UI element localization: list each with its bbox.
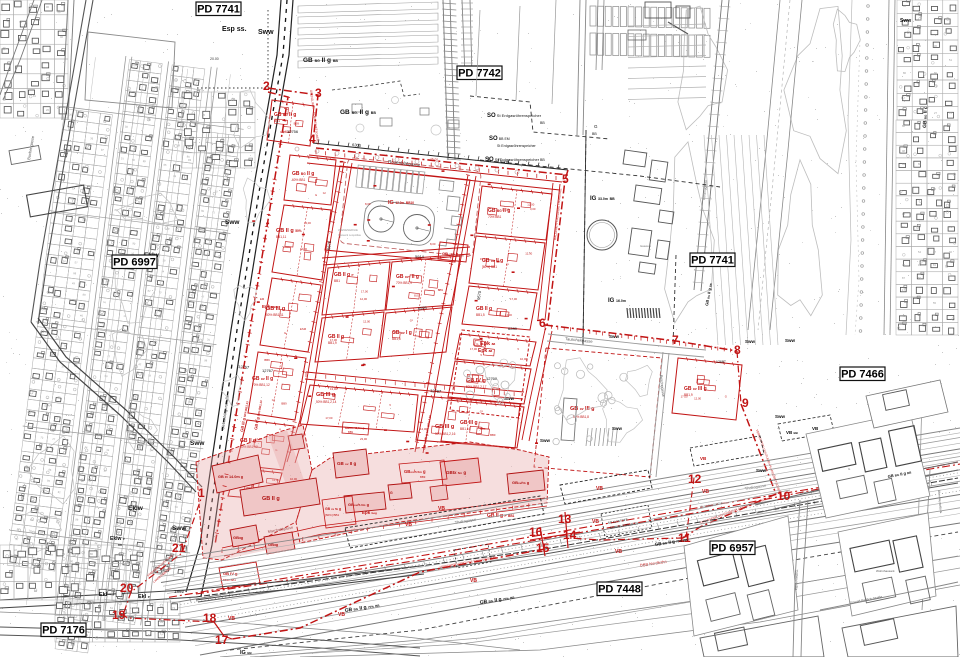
- svg-text:50% BB1,2,16: 50% BB1,2,16: [435, 432, 456, 436]
- svg-text:VB: VB: [228, 616, 235, 622]
- svg-text:17,00: 17,00: [470, 347, 477, 351]
- svg-text:70% BB1,12: 70% BB1,12: [252, 383, 270, 387]
- svg-text:2: 2: [263, 79, 270, 93]
- svg-text:8,00: 8,00: [414, 294, 420, 298]
- svg-text:3: 3: [315, 86, 322, 100]
- svg-text:PD 7466: PD 7466: [841, 369, 884, 381]
- svg-text:G: G: [476, 342, 478, 346]
- svg-text:Gaswerk Leopoldau: Gaswerk Leopoldau: [338, 233, 362, 237]
- svg-text:BB1,11: BB1,11: [276, 235, 286, 239]
- svg-text:1892: 1892: [174, 589, 185, 594]
- svg-text:8,00: 8,00: [430, 242, 436, 246]
- svg-text:BB1,5: BB1,5: [392, 337, 401, 341]
- svg-text:PD 7742: PD 7742: [458, 68, 501, 80]
- svg-text:PD 7176: PD 7176: [42, 625, 85, 637]
- svg-text:Eklw P: Eklw P: [110, 536, 125, 542]
- svg-text:BB1,9: BB1,9: [684, 393, 693, 397]
- svg-text:VB: VB: [615, 549, 622, 555]
- svg-text:BB1: BB1: [334, 279, 340, 283]
- svg-text:1: 1: [198, 486, 205, 500]
- svg-text:17,00: 17,00: [361, 290, 368, 294]
- svg-text:BB: BB: [540, 121, 545, 125]
- svg-text:BB1,9: BB1,9: [328, 341, 337, 345]
- svg-text:10,00: 10,00: [290, 477, 297, 481]
- svg-text:G²: G²: [272, 398, 275, 402]
- svg-text:13: 13: [558, 512, 572, 526]
- svg-text:12687: 12687: [716, 360, 726, 364]
- svg-text:12757: 12757: [238, 364, 250, 370]
- svg-text:70% BB1: 70% BB1: [488, 215, 502, 219]
- svg-text:BB: BB: [118, 543, 122, 547]
- svg-text:GB III g: GB III g: [266, 306, 285, 312]
- svg-text:4,00: 4,00: [480, 427, 486, 431]
- svg-text:12,00: 12,00: [360, 297, 367, 301]
- svg-text:G: G: [284, 331, 286, 335]
- svg-text:50% BB1,2,17: 50% BB1,2,17: [466, 385, 487, 389]
- svg-text:VB: VB: [700, 456, 707, 461]
- svg-text:[60%] BB1: [60%] BB1: [482, 265, 497, 269]
- svg-text:8,00: 8,00: [365, 202, 371, 206]
- svg-text:12,00: 12,00: [505, 313, 512, 317]
- svg-text:12767: 12767: [262, 368, 274, 373]
- svg-text:GB ov II g: GB ov II g: [337, 461, 357, 466]
- svg-text:18: 18: [203, 611, 217, 625]
- svg-text:Eklw: Eklw: [128, 505, 144, 512]
- svg-text:8: 8: [734, 343, 741, 357]
- svg-text:Sww: Sww: [756, 468, 767, 473]
- svg-text:21: 21: [172, 541, 186, 555]
- svg-text:PD 7741: PD 7741: [197, 4, 240, 16]
- svg-text:GBov/5.0m g: GBov/5.0m g: [348, 502, 370, 507]
- svg-text:GB 35 14.0m g: GB 35 14.0m g: [218, 475, 244, 479]
- svg-text:10: 10: [777, 489, 791, 503]
- svg-text:PD 6957: PD 6957: [711, 543, 754, 555]
- svg-text:G: G: [315, 193, 317, 197]
- svg-text:VB: VB: [592, 519, 599, 525]
- svg-text:VB BB: VB BB: [786, 430, 799, 435]
- svg-text:GBIIg: GBIIg: [233, 535, 244, 540]
- svg-text:EM: EM: [260, 297, 265, 301]
- svg-text:Sww: Sww: [540, 438, 551, 443]
- svg-text:WIENENERGIE: WIENENERGIE: [338, 228, 358, 232]
- svg-text:GBov/5b g: GBov/5b g: [512, 480, 530, 485]
- svg-text:BB9: BB9: [281, 401, 287, 405]
- svg-text:BB9: BB9: [348, 430, 353, 434]
- svg-text:BB9: BB9: [294, 122, 300, 126]
- svg-text:St Erdgasröhrenspeicher: St Erdgasröhrenspeicher: [497, 144, 537, 148]
- svg-text:10,00: 10,00: [520, 357, 527, 361]
- svg-text:19: 19: [112, 608, 126, 622]
- svg-text:Sww: Sww: [612, 426, 623, 431]
- svg-text:17,00: 17,00: [325, 416, 332, 420]
- svg-text:17,00: 17,00: [510, 297, 517, 301]
- svg-text:9: 9: [742, 396, 749, 410]
- svg-text:7: 7: [672, 333, 679, 347]
- svg-text:Wohnhausanl.: Wohnhausanl.: [876, 569, 895, 573]
- svg-text:Esp ss.: Esp ss.: [222, 26, 247, 33]
- svg-text:Sww: Sww: [775, 414, 786, 419]
- svg-text:12,00: 12,00: [363, 320, 370, 324]
- svg-text:60% BB1: 60% BB1: [292, 178, 306, 182]
- svg-text:Sww: Sww: [785, 338, 796, 343]
- svg-text:Sww: Sww: [172, 525, 187, 532]
- svg-text:50% BB1,2,14: 50% BB1,2,14: [316, 400, 337, 404]
- svg-text:23,00: 23,00: [360, 437, 367, 441]
- svg-text:15,00: 15,00: [480, 257, 487, 261]
- svg-text:G: G: [390, 491, 393, 495]
- svg-text:Ekl: Ekl: [99, 592, 108, 598]
- svg-text:12: 12: [688, 472, 702, 486]
- svg-text:6300: 6300: [352, 142, 362, 148]
- svg-text:GBCh 13,0m g: GBCh 13,0m g: [345, 426, 365, 430]
- svg-text:G²: G²: [506, 263, 509, 267]
- svg-text:Epk beg: Epk beg: [362, 510, 377, 515]
- svg-text:GB II g: GB II g: [328, 334, 344, 340]
- svg-text:GB III g: GB III g: [460, 420, 478, 426]
- svg-text:Sww: Sww: [900, 18, 911, 24]
- svg-text:20.00: 20.00: [210, 57, 219, 61]
- svg-text:12,00: 12,00: [304, 221, 311, 225]
- svg-text:6289: 6289: [508, 326, 518, 331]
- svg-text:BB1,16: BB1,16: [460, 427, 471, 431]
- svg-text:G: G: [594, 124, 598, 129]
- svg-text:GBIx 5m g: GBIx 5m g: [446, 470, 466, 475]
- svg-text:Sww: Sww: [190, 440, 205, 447]
- svg-text:Sww: Sww: [225, 219, 240, 226]
- svg-text:BB9: BB9: [264, 358, 270, 362]
- svg-text:G²: G²: [480, 410, 483, 414]
- svg-text:20: 20: [120, 581, 134, 595]
- svg-text:6300: 6300: [500, 159, 510, 165]
- svg-text:PD 7448: PD 7448: [598, 584, 641, 596]
- svg-text:GB II g P: GB II g P: [334, 272, 354, 278]
- svg-text:3,00: 3,00: [530, 207, 536, 211]
- svg-text:12787: 12787: [430, 388, 442, 394]
- svg-text:14: 14: [563, 528, 577, 542]
- svg-text:BB9: BB9: [490, 433, 496, 437]
- svg-text:VB: VB: [438, 506, 445, 512]
- svg-text:12756: 12756: [287, 129, 299, 134]
- svg-text:BB1,5: BB1,5: [476, 313, 485, 317]
- svg-text:6595: 6595: [418, 305, 428, 311]
- svg-text:ESM: ESM: [300, 327, 307, 331]
- svg-text:12,00: 12,00: [694, 397, 701, 401]
- svg-text:Sww: Sww: [609, 334, 620, 339]
- svg-text:VB: VB: [702, 489, 709, 495]
- svg-text:G: G: [725, 395, 727, 399]
- svg-text:[60%] BB1: [60%] BB1: [325, 513, 340, 517]
- svg-text:VB: VB: [812, 426, 819, 431]
- svg-text:12,00: 12,00: [255, 437, 262, 441]
- svg-text:GB BG II g BB: GB BG II g BB: [303, 57, 338, 64]
- svg-text:17: 17: [215, 633, 229, 647]
- svg-text:Gaswerk: Gaswerk: [640, 244, 652, 248]
- svg-text:GB ov I g: GB ov I g: [442, 251, 459, 256]
- svg-text:VB: VB: [596, 486, 603, 492]
- svg-text:15.00: 15.00: [430, 157, 439, 162]
- svg-text:BB9: BB9: [420, 475, 426, 479]
- svg-text:BB: BB: [592, 132, 597, 136]
- svg-text:GB III g: GB III g: [435, 424, 454, 430]
- svg-text:10,00: 10,00: [300, 247, 307, 251]
- svg-text:G: G: [304, 183, 306, 187]
- svg-text:50% BB1,11: 50% BB1,11: [266, 313, 284, 317]
- svg-text:G²: G²: [410, 318, 413, 322]
- svg-text:6,00: 6,00: [330, 157, 336, 161]
- svg-text:GB BG. II g BB: GB BG. II g BB: [340, 109, 376, 116]
- svg-text:VB: VB: [405, 522, 412, 528]
- svg-text:G²: G²: [323, 191, 326, 195]
- svg-text:12,00: 12,00: [525, 251, 532, 255]
- svg-text:GBov/5.5m g: GBov/5.5m g: [404, 469, 426, 474]
- svg-text:GB II g: GB II g: [476, 306, 492, 312]
- svg-text:70% BB1,9: 70% BB1,9: [396, 281, 412, 285]
- svg-text:14,00: 14,00: [420, 427, 427, 431]
- svg-text:Sww: Sww: [258, 29, 274, 36]
- svg-text:BB9: BB9: [438, 288, 444, 292]
- svg-text:PD 7741: PD 7741: [691, 255, 734, 267]
- svg-text:VB: VB: [470, 578, 477, 584]
- svg-text:GB II g: GB II g: [262, 496, 280, 502]
- svg-text:15: 15: [536, 541, 550, 555]
- svg-text:PD 6997: PD 6997: [113, 257, 156, 269]
- svg-text:BB1: BB1: [274, 119, 280, 123]
- svg-text:GB III g: GB III g: [316, 392, 335, 398]
- svg-text:13,00: 13,00: [330, 387, 337, 391]
- svg-text:GB ov 5b g: GB ov 5b g: [325, 507, 341, 511]
- svg-text:5: 5: [562, 172, 569, 186]
- svg-text:Sww: Sww: [745, 339, 756, 344]
- svg-text:16: 16: [529, 525, 543, 539]
